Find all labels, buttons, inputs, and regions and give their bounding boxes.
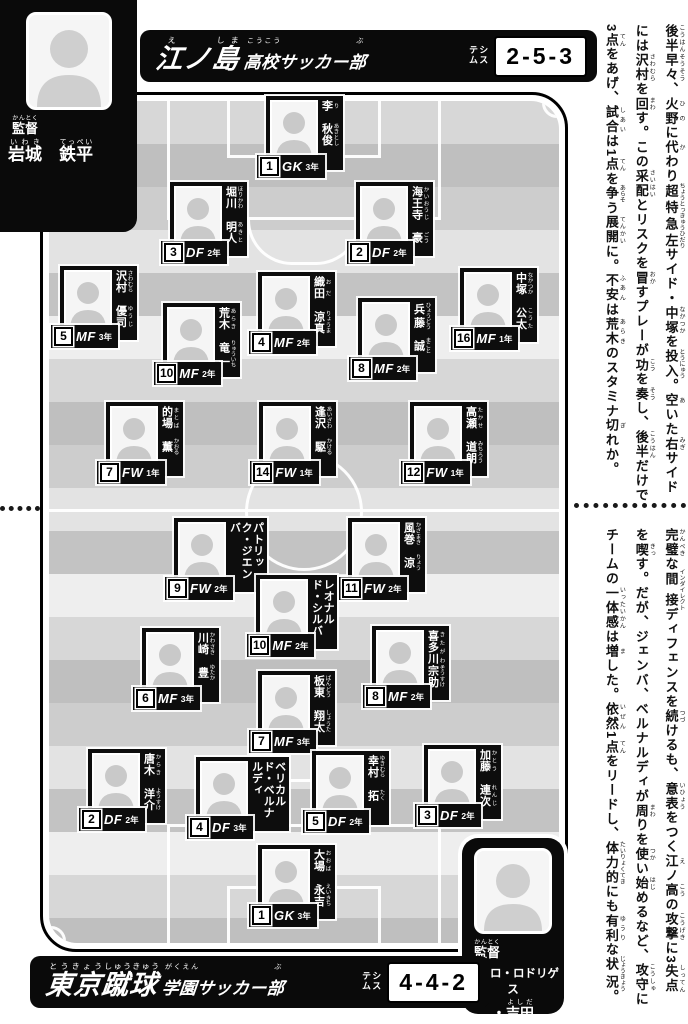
player-number-bar: 10 MF 2年 [247,634,314,657]
player-card: 的場まとば 薫かおる 7 FW 1年 [106,402,183,476]
player-number-bar: 9 FW 2年 [165,577,233,600]
player-position: FW [275,465,296,480]
player-year: 2年 [349,816,362,828]
player-position: MF [274,335,294,350]
player-portrait [316,755,364,817]
player-number: 10 [157,364,176,383]
team-banner-top: 江えノ島しま 高校こうこうサッカー部ぶ システム 2-5-3 [140,30,597,82]
player-year: 2年 [411,691,424,703]
player-number: 9 [168,579,187,598]
player-card: ベリカルド・ベルナルディ 4 DF 3年 [196,757,289,831]
player-number-bar: 8 MF 2年 [349,357,416,380]
player-year: 2年 [295,640,308,652]
player-number: 2 [350,243,369,262]
player-portrait [200,761,248,823]
player-portrait [110,406,158,468]
player-position: MF [388,689,408,704]
player-position: MF [374,361,394,376]
coach-name: 岩城いわき 鉄平てっぺい [8,139,137,165]
player-year: 2年 [397,363,410,375]
player-number: 4 [252,333,271,352]
player-number-bar: 3 DF 2年 [161,241,227,264]
player-portrait [174,186,222,248]
player-number-bar: 14 FW 1年 [250,461,319,484]
player-card: 喜多川きたがわ宗助そうすけ 8 MF 2年 [372,626,449,700]
coach-portrait [26,12,112,110]
player-number-bar: 5 DF 2年 [303,810,369,833]
player-portrait [362,302,410,364]
team-title-bottom: 東京とうきょう蹴球しゅうきゅう 学園がくえんサッカー部ぶ [44,962,287,1002]
player-year: 3年 [233,822,246,834]
player-position: FW [364,581,385,596]
player-number-bar: 7 MF 3年 [249,730,316,753]
player-number: 5 [54,327,73,346]
player-position: DF [186,245,204,260]
player-portrait [64,270,112,332]
player-position: GK [282,159,303,174]
player-year: 2年 [214,583,227,595]
player-year: 1年 [300,467,313,479]
system-label: システム [361,971,382,993]
team-banner-bottom: 東京とうきょう蹴球しゅうきゅう 学園がくえんサッカー部ぶ システム 4-4-2 [30,956,490,1008]
player-position: MF [158,691,178,706]
player-number-bar: 8 MF 2年 [363,685,430,708]
player-number: 6 [136,689,155,708]
player-number: 3 [418,806,437,825]
player-card: 逢沢あいざわ 駆かける 14 FW 1年 [259,402,336,476]
player-year: 2年 [297,337,310,349]
player-position: MF [274,734,294,749]
player-card: レオナルド・シルバ 10 MF 2年 [256,575,337,649]
player-name: 幸村ゆきむら 拓たく [366,755,385,821]
player-card: 李り 秋俊あきとし 1 GK 3年 [266,96,343,170]
player-card: 荒木あらき 竜一りゅういち 10 MF 2年 [163,303,240,377]
player-number: 7 [100,463,119,482]
player-number: 10 [250,636,269,655]
player-card: 幸村ゆきむら 拓たく 5 DF 2年 [312,751,389,825]
player-number-bar: 12 FW 1年 [401,461,470,484]
player-number: 2 [82,810,101,829]
player-portrait [178,522,226,584]
coach-panel-top: 監督かんとく 岩城いわき 鉄平てっぺい [0,0,137,232]
player-position: MF [76,329,96,344]
player-number-bar: 2 DF 2年 [79,808,145,831]
team-title-top: 江えノ島しま 高校こうこうサッカー部ぶ [154,36,369,76]
player-card: 海王寺かいおうじ 豪ごう 2 DF 2年 [356,182,433,256]
player-number: 4 [190,818,209,837]
player-portrait [263,406,311,468]
player-number-bar: 11 FW 2年 [339,577,407,600]
player-year: 2年 [388,583,401,595]
player-year: 3年 [297,736,310,748]
player-number-bar: 1 GK 3年 [249,904,317,927]
system-label: システム [468,45,489,67]
player-number-bar: 1 GK 3年 [257,155,325,178]
player-year: 3年 [181,693,194,705]
player-year: 1年 [451,467,464,479]
player-position: DF [372,245,390,260]
player-card: パトリック・ジエンバ 9 FW 2年 [174,518,267,592]
player-card: 堀川ほりかわ 明人あきと 3 DF 2年 [170,182,247,256]
team-title-sub: 高校こうこうサッカー部ぶ [243,53,367,72]
player-portrait [262,849,310,911]
player-number-bar: 10 MF 2年 [154,362,221,385]
player-year: 3年 [306,161,319,173]
player-portrait [464,272,512,334]
player-number-bar: 2 DF 2年 [347,241,413,264]
player-year: 2年 [125,814,138,826]
player-number: 14 [253,463,272,482]
player-card: 板東ばんどう 翔太しょうた 7 MF 3年 [258,671,335,745]
player-portrait [376,630,424,692]
player-portrait [260,579,308,641]
player-portrait [262,276,310,338]
player-number: 8 [366,687,385,706]
coach-role-label: 監督かんとく [474,940,564,961]
player-number-bar: 4 DF 3年 [187,816,253,839]
player-number: 5 [306,812,325,831]
player-portrait [262,675,310,737]
player-card: 風巻かざまき 涼りょう 11 FW 2年 [348,518,425,592]
player-number-bar: 5 MF 3年 [51,325,118,348]
player-portrait [270,100,318,162]
player-position: DF [104,812,122,827]
player-position: MF [179,366,199,381]
player-name: ベリカルド・ベルナルディ [250,761,285,827]
player-year: 3年 [298,910,311,922]
player-name: 海王寺かいおうじ 豪ごう [410,186,429,252]
player-card: 沢村さわむら 優司ゆうじ 5 MF 3年 [60,266,137,340]
system-value: 2-5-3 [494,36,587,77]
player-number-bar: 4 MF 2年 [249,331,316,354]
player-number: 11 [342,579,361,598]
player-portrait [167,307,215,369]
player-card: 高瀬たかせ 道朗みちろう 12 FW 1年 [410,402,487,476]
player-position: MF [272,638,292,653]
player-portrait [428,749,476,811]
player-number: 8 [352,359,371,378]
player-name: 加藤かとう 連次れんじ [478,749,497,815]
player-number-bar: 3 DF 2年 [415,804,481,827]
player-portrait [360,186,408,248]
player-number: 1 [260,157,279,176]
player-year: 2年 [461,810,474,822]
player-card: 織田おだ 涼真りょうま 4 MF 2年 [258,272,335,346]
player-portrait [414,406,462,468]
coach-role-label: 監督かんとく [12,116,137,137]
player-position: FW [122,465,143,480]
player-portrait [146,632,194,694]
player-year: 2年 [207,247,220,259]
player-number: 16 [454,329,473,348]
player-card: 大場おおば 永吉えいきち 1 GK 3年 [258,845,335,919]
player-position: FW [426,465,447,480]
player-number-bar: 6 MF 3年 [133,687,200,710]
team-title-main: 東京とうきょう蹴球しゅうきゅう [44,970,159,1000]
player-name: 堀川ほりかわ 明人あきと [224,186,243,252]
player-number: 12 [404,463,423,482]
player-number: 3 [164,243,183,262]
team-title-main: 江えノ島しま [154,44,241,74]
player-position: MF [476,331,496,346]
player-card: 加藤かとう 連次れんじ 3 DF 2年 [424,745,501,819]
player-year: 1年 [499,333,512,345]
player-name: 唐木からき 洋介ようすけ [142,753,161,819]
player-number: 1 [252,906,271,925]
player-position: GK [274,908,295,923]
player-number-bar: 16 MF 1年 [451,327,518,350]
player-number-bar: 7 FW 1年 [97,461,165,484]
player-year: 2年 [202,368,215,380]
team-title-sub: 学園がくえんサッカー部ぶ [161,979,285,998]
player-portrait [92,753,140,815]
player-year: 3年 [99,331,112,343]
player-position: DF [440,808,458,823]
player-card: 兵藤ひょうどう 誠まこと 8 MF 2年 [358,298,435,372]
player-card: 中塚なかつか 公太こうた 16 MF 1年 [460,268,537,342]
player-card: 川崎かわさき 豊ゆたか 6 MF 3年 [142,628,219,702]
manga-formation-page: 李り 秋俊あきとし 1 GK 3年 堀川ほりかわ 明人あきと 3 DF 2年 海… [0,0,688,1024]
player-card: 唐木からき 洋介ようすけ 2 DF 2年 [88,749,165,823]
player-position: FW [190,581,211,596]
player-year: 1年 [146,467,159,479]
player-number: 7 [252,732,271,751]
player-year: 2年 [393,247,406,259]
coach-portrait [474,848,552,934]
player-position: DF [328,814,346,829]
player-portrait [352,522,400,584]
system-value: 4-4-2 [387,962,480,1003]
player-position: DF [212,820,230,835]
